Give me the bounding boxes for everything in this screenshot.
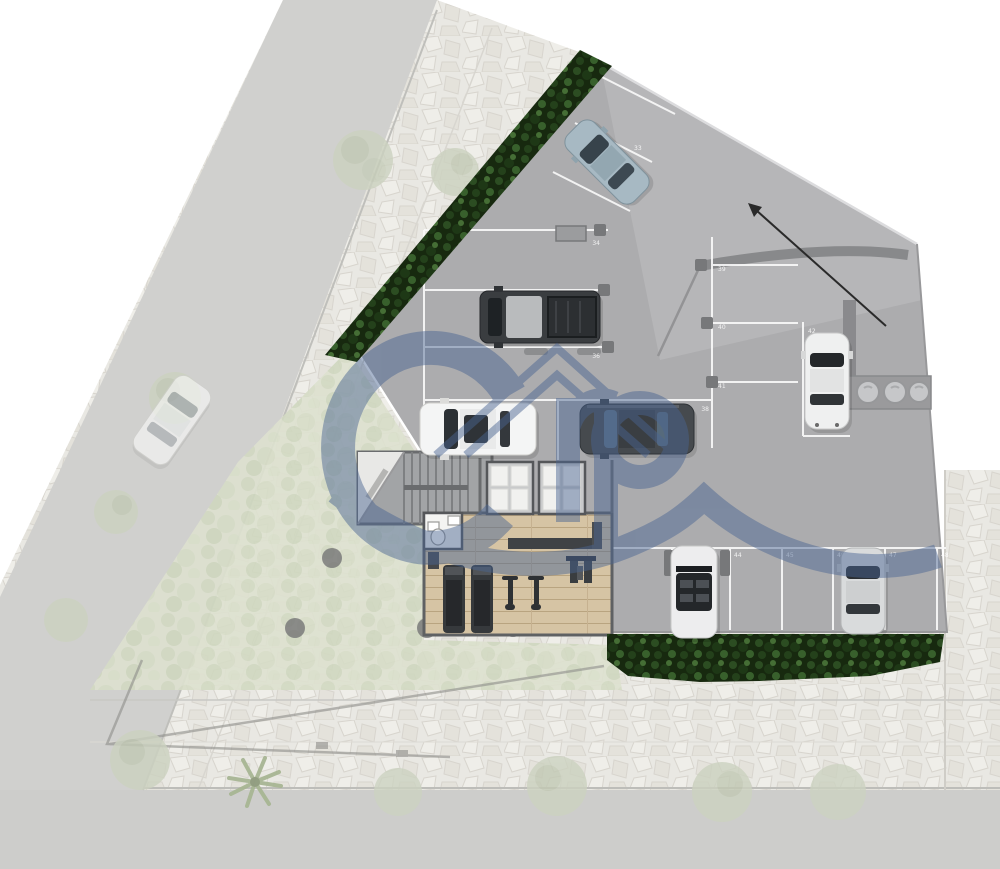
site-plan-svg: 33 34 35 36 37 38 39 40 41 42 43 44 45 4… [0, 0, 1000, 869]
car-coupe-white [801, 333, 853, 433]
stall-number: 36 [592, 353, 600, 360]
tree-icon [333, 130, 393, 190]
stall-number: 34 [592, 240, 600, 247]
treadmill-icon [443, 565, 465, 633]
car-pickup-truck [480, 286, 603, 348]
stall-number: 40 [718, 324, 726, 331]
utility-drum-icon [857, 381, 929, 403]
stall-number: 48 [941, 552, 949, 559]
treadmill-icon [471, 565, 493, 633]
stall-number: 38 [701, 406, 709, 413]
stair-handrail [404, 485, 468, 490]
car-convertible-white [671, 546, 720, 642]
stall-number: 39 [718, 266, 726, 273]
stall-number: 33 [634, 145, 642, 152]
stall-number: 44 [734, 552, 742, 559]
floor-plan-image: 33 34 35 36 37 38 39 40 41 42 43 44 45 4… [0, 0, 1000, 869]
utility-box [556, 226, 586, 241]
sink-icon [448, 516, 460, 525]
elevator-cab [487, 462, 533, 514]
stall-number: 41 [718, 383, 726, 390]
